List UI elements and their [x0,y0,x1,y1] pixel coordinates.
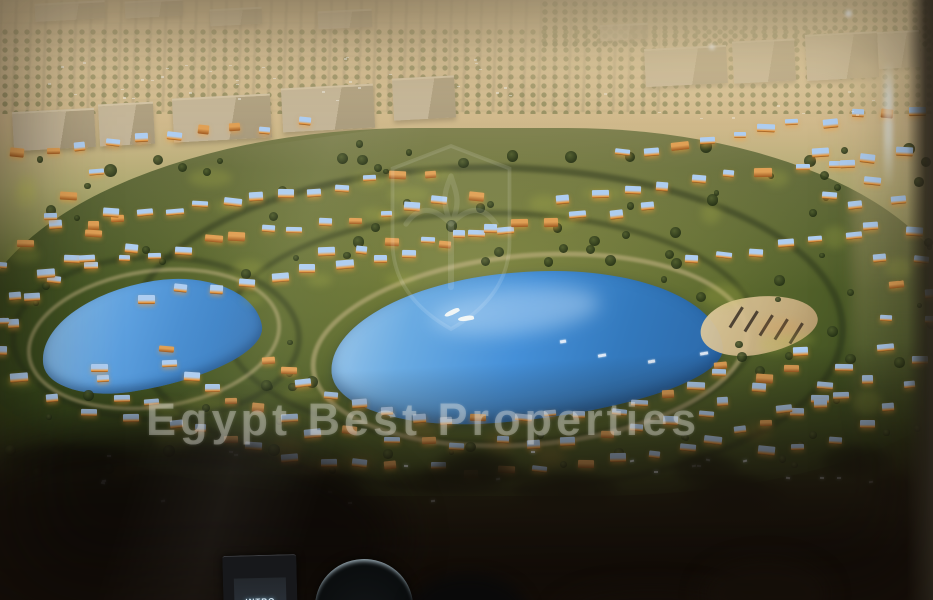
intro-screen-panel: INTRO [234,577,287,600]
masterplan-photo: Egypt Best Properties INTRO [0,0,933,600]
intro-label: INTRO [245,596,275,600]
intro-mini-screen: INTRO [222,554,298,600]
vignette [0,0,933,600]
